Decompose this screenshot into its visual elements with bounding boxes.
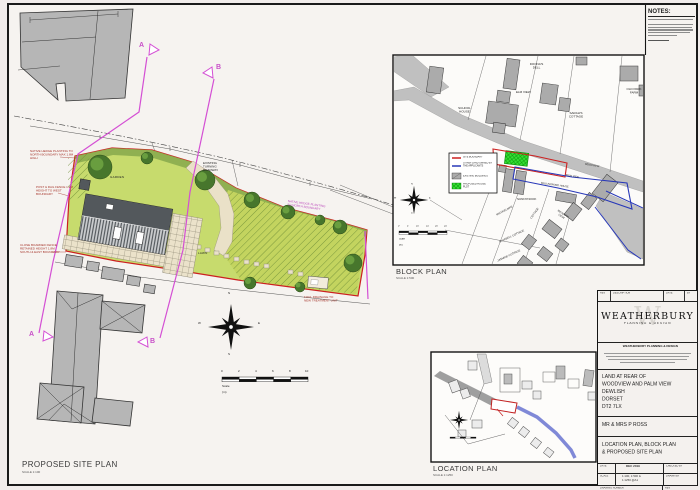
treatment-unit — [308, 276, 329, 289]
location-plan-title: LOCATION PLAN — [433, 464, 498, 473]
scale-bar-site — [222, 377, 308, 382]
scale-bar-location — [450, 437, 476, 438]
annotation-foul-drainage: FOUL DRAINAGE TO NEW TREATMENT UNIT — [304, 296, 340, 303]
date-label: DATE — [600, 465, 607, 468]
scalebar-tick: 25 — [444, 225, 447, 228]
date-col-label: DATE — [666, 292, 673, 295]
firm-address-lines — [598, 353, 697, 363]
rev-label: REV — [665, 487, 670, 490]
rev-col-label: REV — [600, 292, 605, 295]
compass-e: E — [429, 197, 431, 200]
compass-e: E — [258, 322, 260, 326]
drawing-title-line: & PROPOSED SITE PLAN — [602, 449, 650, 457]
drawing-title-section: LOCATION PLAN, BLOCK PLAN & PROPOSED SIT… — [598, 437, 697, 464]
legend-other-land: OTHER LAND OWNED BY THE APPLICANTS — [463, 162, 495, 168]
firm-logo: W WEATHERBURY PLANNING & DESIGN — [598, 302, 697, 343]
lawn-label: LAWN — [198, 252, 208, 256]
project-line: LAND AT REAR OF — [602, 373, 650, 381]
legend-site-boundary: SITE BOUNDARY — [463, 156, 483, 159]
scalebar-tick: 15 — [426, 225, 429, 228]
project-line: WOODVIEW AND PALM VIEW — [602, 381, 650, 389]
annotation-hedge-north: NATIVE HEDGE PLANTING TO NORTH BOUNDARY … — [30, 150, 75, 161]
house-label-doonas-dell: DOONA'S DELL — [526, 63, 547, 70]
block-plan-scale: SCALE 1:500 — [396, 277, 414, 280]
project-line: DEWLISH — [602, 388, 650, 396]
house-label-old-park-farm: OLD PARK FARM — [624, 88, 644, 95]
house-label-sarahs-cottage: SARAH'S COTTAGE — [562, 112, 590, 119]
scalebar-unit: (m) — [222, 391, 227, 395]
scalebar-label: Scale — [222, 385, 230, 389]
scalebar-tick: 4 — [255, 370, 257, 374]
scalebar-tick: 0 — [398, 225, 399, 228]
section-marker-a-top: A — [139, 42, 144, 49]
notes-heading: NOTES: — [648, 9, 695, 17]
location-plan-drawing — [431, 352, 596, 462]
scale-value: 1:100, 1:500 &1:1250 @A1 — [622, 475, 660, 482]
scale-bar-block — [399, 231, 447, 235]
scalebar-tick: 10 — [305, 370, 308, 374]
drawing-sheet: PROPOSED SITE PLAN SCALE 1:100 NATIVE HE… — [0, 0, 700, 490]
firm-subheading: WEATHERBURY PLANNING & DESIGN — [623, 345, 673, 348]
notes-panel: NOTES: — [648, 9, 695, 42]
house-label-elm-view: ELM VIEW — [516, 91, 531, 95]
block-plan-drawing — [393, 54, 650, 271]
checked-by-label: CHECKED BY — [666, 465, 682, 468]
firm-tagline: PLANNING & DESIGN — [620, 322, 674, 325]
compass-n: N — [411, 183, 413, 186]
scalebar-tick: 2 — [238, 370, 240, 374]
location-plan-scale: SCALE 1:1250 — [433, 474, 453, 477]
section-marker-a-bottom: A — [29, 331, 34, 338]
firm-name: WEATHERBURY — [598, 302, 697, 322]
scalebar-tick: 0 — [221, 370, 223, 374]
compass-w: W — [198, 322, 201, 326]
compass-w: W — [394, 197, 396, 200]
client-name: MR & MRS P ROSS — [602, 421, 650, 429]
notes-text-lines — [648, 19, 695, 41]
project-line: DORSET — [602, 396, 650, 404]
block-plan-title: BLOCK PLAN — [396, 267, 447, 276]
section-marker-b-top: B — [216, 64, 221, 71]
by-col-label: BY — [687, 292, 690, 295]
annotation-post-rail-fence: POST & RAIL FENCE 1.2M HEIGHT TO WEST BO… — [36, 186, 76, 197]
scalebar-label: Scale — [399, 238, 405, 241]
house-label-sunnynook: SUNNYNOOK — [517, 198, 536, 202]
drawn-by-label: DRAWN BY — [666, 475, 679, 478]
revision-strip: REV DESCRIPTION DATE BY — [598, 291, 697, 302]
site-plan-scale: SCALE 1:100 — [22, 471, 40, 474]
scalebar-unit: (m) — [399, 244, 403, 247]
legend-existing-buildings: EXISTING BUILDINGS — [463, 175, 488, 178]
scalebar-tick: 8 — [289, 370, 291, 374]
description-col-label: DESCRIPTION — [613, 292, 630, 295]
scalebar-tick: 5 — [407, 225, 408, 228]
scalebar-tick: 6 — [272, 370, 274, 374]
scale-label: SCALE — [600, 475, 608, 478]
house-label-school-house: SCHOOL HOUSE — [453, 107, 476, 114]
date-value: DEC 2019 — [626, 465, 640, 468]
scalebar-tick: 20 — [435, 225, 438, 228]
compass-s: S — [228, 353, 230, 357]
project-line: DT2 7LX — [602, 403, 650, 411]
field-rows: DATE DEC 2019 CHECKED BY SCALE 1:100, 1:… — [598, 464, 697, 490]
plan-artwork — [0, 0, 700, 490]
site-plan-title: PROPOSED SITE PLAN — [22, 460, 118, 469]
project-address: LAND AT REAR OF WOODVIEW AND PALM VIEW D… — [598, 370, 697, 417]
compass-s: S — [411, 212, 413, 215]
annotation-close-boarded-fence: CLOSE BOARDED FENCE RETAINED HEIGHT 1.8M… — [20, 244, 62, 255]
annotation-turning-roadway: EXISTING TURNING ROADWAY — [203, 162, 231, 173]
garden-label: GARDEN — [110, 176, 124, 180]
client-name-section: MR & MRS P ROSS — [598, 417, 697, 437]
title-block: REV DESCRIPTION DATE BY W WEATHERBURY PL… — [597, 290, 697, 485]
section-marker-b-bottom: B — [150, 338, 155, 345]
drawing-title-line: LOCATION PLAN, BLOCK PLAN — [602, 441, 650, 449]
scalebar-tick: 10 — [416, 225, 419, 228]
legend-proposed-plot: PROPOSED HOUSE PLOT — [463, 183, 491, 189]
drawing-number-label: DRAWING NUMBER — [600, 487, 624, 490]
compass-n: N — [228, 292, 230, 296]
firm-contact: WEATHERBURY PLANNING & DESIGN — [598, 343, 697, 370]
